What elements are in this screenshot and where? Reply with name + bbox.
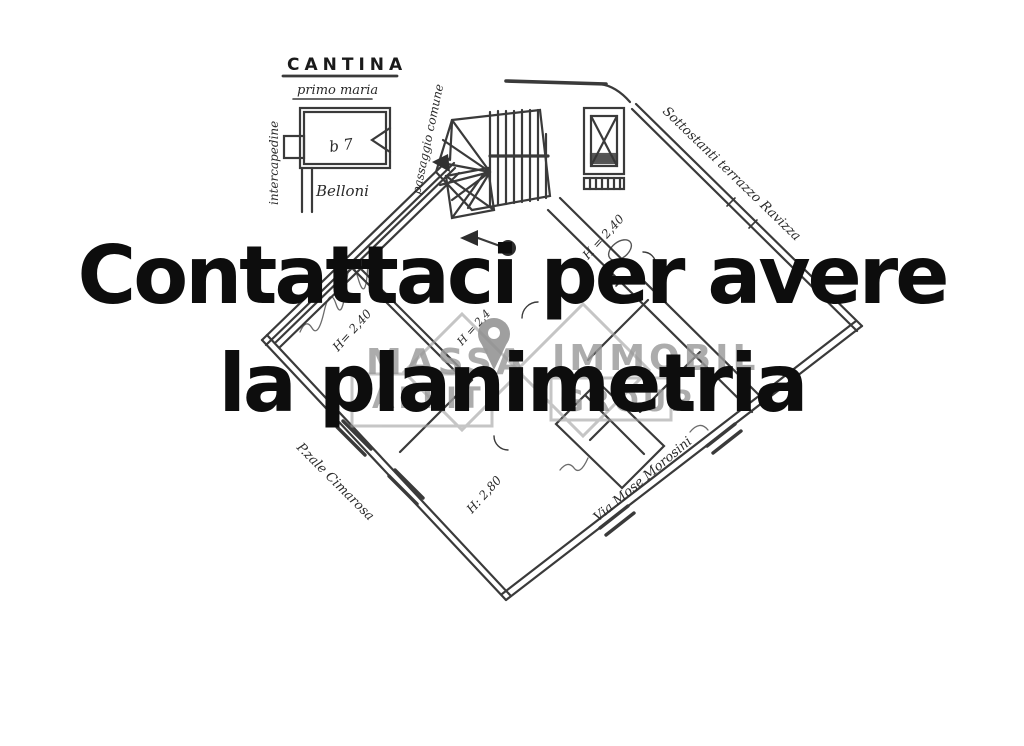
cantina-left-label: intercapedine xyxy=(267,121,281,205)
cantina-inner-label: b 7 xyxy=(328,135,355,156)
cantina-bottom-label: Belloni xyxy=(315,182,369,200)
label-top-right-wall: Sottostanti terrazzo Ravizza xyxy=(659,104,803,244)
cantina-title: CANTINA xyxy=(287,55,407,75)
elevator-shaft xyxy=(584,108,624,189)
overlay-text-line1: Contattaci per avere xyxy=(0,236,1024,316)
floorplan-teaser-image: CANTINA primo maria intercapedine passag… xyxy=(0,0,1024,746)
staircase xyxy=(436,110,550,210)
label-street-bottom-right: Via Mose Morosini xyxy=(591,434,695,525)
height-label-bottom: H: 2,80 xyxy=(463,473,504,517)
cantina-subtitle: primo maria xyxy=(297,83,378,98)
overlay-text-line2: la planimetria xyxy=(0,344,1024,424)
